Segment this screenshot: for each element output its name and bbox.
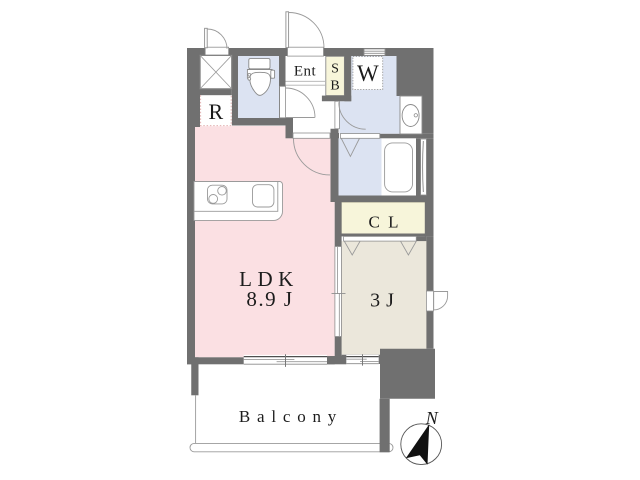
svg-text:R: R [208, 99, 223, 124]
svg-text:S: S [331, 62, 339, 77]
svg-text:C L: C L [369, 213, 401, 232]
svg-text:N: N [425, 408, 439, 428]
svg-text:3J: 3J [370, 290, 400, 312]
svg-text:8.9 J: 8.9 J [246, 287, 293, 311]
svg-text:Balcony: Balcony [239, 407, 343, 426]
svg-text:Ent: Ent [294, 64, 317, 80]
svg-text:W: W [357, 61, 379, 86]
svg-text:B: B [330, 79, 339, 94]
